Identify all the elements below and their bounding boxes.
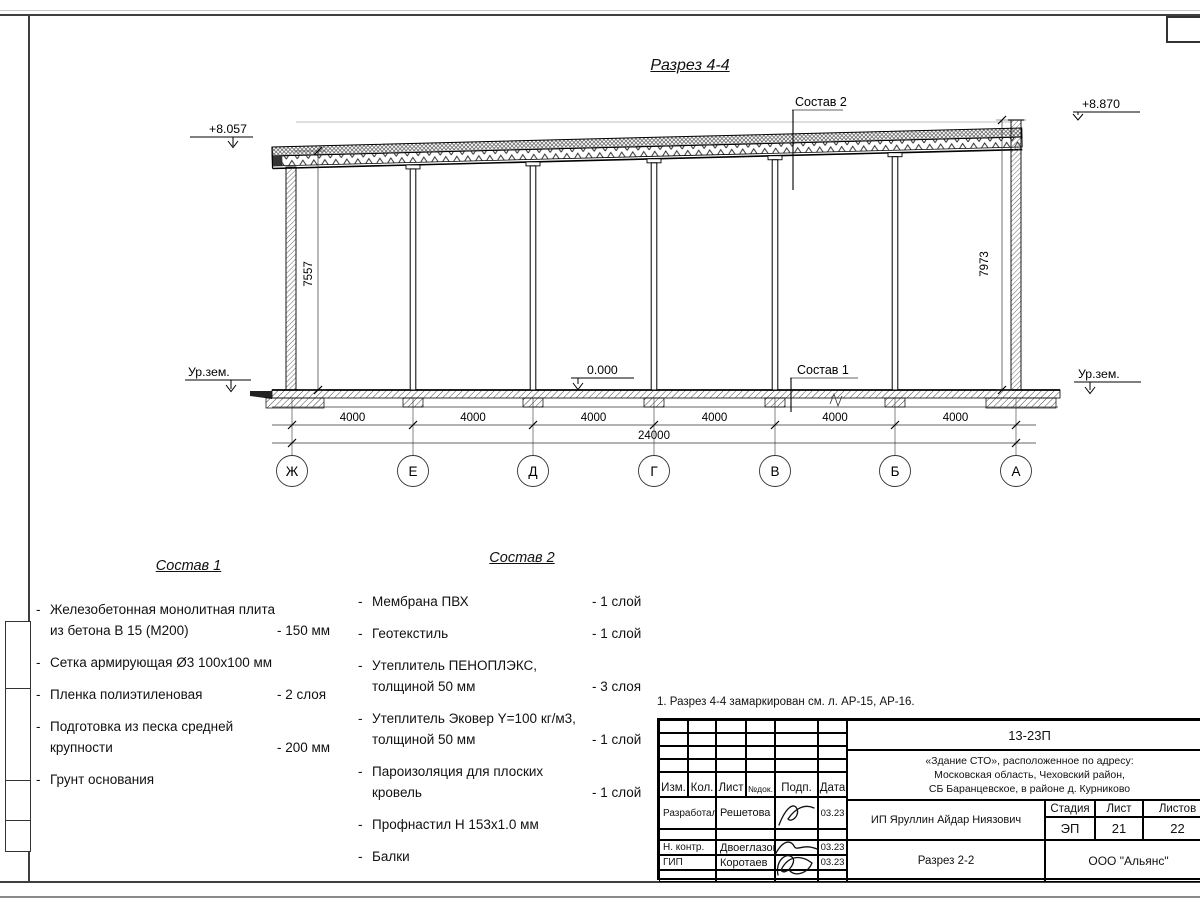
column-footing	[644, 398, 664, 407]
revision-header-cell: Подп.	[775, 772, 818, 797]
revision-cell	[659, 720, 688, 733]
composition2-title: Состав 2	[358, 548, 656, 569]
date-cell: 03.23	[818, 840, 847, 855]
client-name: ИП Яруллин Айдар Ниязович	[871, 814, 1021, 826]
column-footing	[765, 398, 785, 407]
composition-item-value: - 1 слой	[592, 729, 656, 750]
revision-cell	[716, 720, 746, 733]
stage-label: Стадия	[1050, 803, 1089, 815]
revision-header-cell: Изм.	[659, 772, 688, 797]
composition-item: -Пароизоляция для плоских кровель- 1 сло…	[358, 761, 656, 803]
sheets-value: 22	[1170, 821, 1184, 836]
revision-cell	[818, 759, 847, 772]
revision-cell	[746, 720, 775, 733]
revision-cell	[659, 733, 688, 746]
project-line: Московская область, Чеховский район,	[934, 768, 1125, 782]
column-footing	[885, 398, 905, 407]
left-footing	[266, 398, 324, 408]
composition-item-value: - 1 слой	[592, 782, 656, 803]
composition-item: -Утеплитель ПЕНОПЛЭКС,толщиной 50 мм- 3 …	[358, 655, 656, 697]
right-wall-parapet	[1011, 120, 1021, 390]
ground-level-right: Ур.зем.	[1074, 367, 1141, 394]
elevation-zero: 0.000	[571, 363, 634, 390]
company-cell: ООО "Альянс"	[1045, 840, 1200, 882]
revision-cell	[659, 759, 688, 772]
sheets-label-cell: Листов	[1143, 800, 1200, 817]
revision-cell	[746, 759, 775, 772]
revision-cell	[688, 733, 716, 746]
axis-label: Е	[408, 464, 417, 479]
composition-item-value: - 1 слой	[592, 623, 656, 644]
roof-edge-channel	[272, 156, 282, 166]
drawing-name: Разрез 2-2	[918, 855, 974, 867]
drawing-sheet: Разрез 4-4	[0, 0, 1200, 900]
column-footing	[523, 398, 543, 407]
doc-number-cell: 13-23П	[847, 720, 1200, 750]
column	[892, 157, 898, 390]
column-capital	[526, 162, 540, 166]
side-stamp-box	[5, 621, 31, 690]
axis-label: В	[770, 464, 779, 479]
composition1-title: Состав 1	[36, 556, 341, 577]
composition-item: -Подготовка из песка среднейкрупности- 2…	[36, 716, 341, 758]
column	[410, 169, 416, 390]
role-cell: ГИП	[659, 855, 716, 870]
section-drawing: 7557 7973 +8.057 +8.870 0.000	[0, 0, 1200, 520]
ground-level-label: Ур.зем.	[1078, 367, 1120, 381]
revision-cell	[775, 720, 818, 733]
project-line: СБ Баранцевское, в районе д. Курниково	[929, 782, 1130, 796]
composition1-block: Состав 1 -Железобетонная монолитная плит…	[36, 556, 341, 801]
elevation-label: +8.870	[1082, 97, 1120, 111]
note-text: 1. Разрез 4-4 замаркирован см. л. АР-15,…	[657, 696, 915, 708]
empty-cell	[716, 829, 775, 840]
revision-cell	[716, 733, 746, 746]
sheet-value: 21	[1112, 821, 1126, 836]
revision-cell	[688, 759, 716, 772]
composition-item: -Грунт основания	[36, 769, 341, 790]
composition-item: -Балки	[358, 846, 656, 867]
revision-cell	[818, 720, 847, 733]
stage-value-cell: ЭП	[1045, 817, 1095, 840]
composition-item: -Геотекстиль- 1 слой	[358, 623, 656, 644]
axis-label: Д	[528, 464, 537, 479]
dim-left-label: 7557	[303, 261, 315, 287]
role-cell: Разработал	[659, 797, 716, 829]
composition-item-value: - 150 мм	[277, 620, 341, 641]
column-capital	[768, 156, 782, 160]
composition-item-value: - 1 слой	[592, 591, 656, 612]
column-capital	[888, 153, 902, 157]
composition-item: -Железобетонная монолитная плитаиз бетон…	[36, 599, 341, 641]
roof-left-edge	[272, 147, 273, 168]
axis-label: Ж	[286, 464, 299, 479]
floor-slab	[272, 390, 1060, 398]
revision-header-cell: Кол.	[688, 772, 716, 797]
column	[530, 166, 536, 390]
elevation-label: +8.057	[209, 122, 247, 136]
bay-dim-label: 4000	[943, 412, 969, 424]
elevation-right-top: +8.870	[1073, 97, 1140, 120]
sheet-label: Лист	[1107, 803, 1132, 815]
axis-label: Б	[891, 464, 900, 479]
revision-cell	[775, 759, 818, 772]
revision-header-cell: №док.	[746, 772, 775, 797]
column-footing	[403, 398, 423, 407]
role-cell: Н. контр.	[659, 840, 716, 855]
signature	[772, 849, 820, 888]
name-cell: Двоеглазов	[716, 840, 775, 855]
composition-item: -Утеплитель Эковер Y=100 кг/м3,толщиной …	[358, 708, 656, 750]
empty-cell	[818, 829, 847, 840]
sheet-value-cell: 21	[1095, 817, 1143, 840]
left-wall	[286, 167, 296, 390]
date-cell: 03.23	[818, 797, 847, 829]
composition-item: -Сетка армирующая Ø3 100х100 мм	[36, 652, 341, 673]
composition-item-value: - 200 мм	[277, 737, 341, 758]
revision-cell	[716, 759, 746, 772]
bay-dim-label: 4000	[340, 412, 366, 424]
empty-cell	[818, 870, 847, 882]
side-stamp-box	[5, 780, 31, 822]
date-cell: 03.23	[818, 855, 847, 870]
project-cell: «Здание СТО», расположенное по адресу: М…	[847, 750, 1200, 800]
composition-item-value: - 2 слоя	[277, 684, 341, 705]
axis-label: А	[1011, 464, 1020, 479]
elevation-left-top: +8.057	[190, 122, 253, 148]
side-stamp-box	[5, 688, 31, 782]
stage-label-cell: Стадия	[1045, 800, 1095, 817]
empty-cell	[659, 870, 716, 882]
right-footing	[986, 398, 1056, 408]
drawing-name-cell: Разрез 2-2	[847, 840, 1045, 882]
column-capital	[406, 165, 420, 169]
revision-cell	[688, 720, 716, 733]
title-block: 13-23П «Здание СТО», расположенное по ад…	[657, 718, 1200, 880]
revision-cell	[775, 746, 818, 759]
revision-cell	[716, 746, 746, 759]
revision-cell	[818, 746, 847, 759]
column	[772, 160, 778, 390]
column	[651, 163, 657, 390]
revision-header-cell: Дата	[818, 772, 847, 797]
generated-axes-and-columns: ЖЕДГВБА400040004000400040004000	[277, 153, 1032, 487]
composition-item: -Мембрана ПВХ- 1 слой	[358, 591, 656, 612]
revision-cell	[659, 746, 688, 759]
composition2-block: Состав 2 -Мембрана ПВХ- 1 слой-Геотексти…	[358, 548, 656, 878]
revision-cell	[746, 746, 775, 759]
doc-number: 13-23П	[1008, 728, 1051, 743]
composition1-items: -Железобетонная монолитная плитаиз бетон…	[36, 599, 341, 790]
ground-level-label: Ур.зем.	[188, 365, 230, 379]
name-cell: Коротаев	[716, 855, 775, 870]
stage-value: ЭП	[1061, 821, 1080, 836]
sheets-label: Листов	[1159, 803, 1196, 815]
client-cell: ИП Яруллин Айдар Ниязович	[847, 800, 1045, 840]
composition-item: -Пленка полиэтиленовая- 2 слоя	[36, 684, 341, 705]
revision-header-cell: Лист	[716, 772, 746, 797]
revision-cell	[775, 733, 818, 746]
signature	[776, 799, 818, 836]
leader-floor-composition: Состав 1	[790, 363, 858, 412]
revision-cell	[746, 733, 775, 746]
bay-dim-label: 4000	[822, 412, 848, 424]
revision-cell	[818, 733, 847, 746]
column-capital	[647, 159, 661, 163]
side-stamp-box	[5, 820, 31, 852]
leader-label: Состав 1	[797, 363, 849, 377]
vertical-dimension-left: 7557	[294, 147, 326, 394]
axis-label: Г	[650, 464, 658, 479]
leader-label: Состав 2	[795, 95, 847, 109]
bay-dim-label: 4000	[581, 412, 607, 424]
project-line: «Здание СТО», расположенное по адресу:	[925, 754, 1133, 768]
ground-level-left: Ур.зем.	[185, 365, 251, 392]
elevation-label: 0.000	[587, 363, 618, 377]
sheets-value-cell: 22	[1143, 817, 1200, 840]
empty-cell	[716, 870, 775, 882]
composition2-items: -Мембрана ПВХ- 1 слой-Геотекстиль- 1 сло…	[358, 591, 656, 867]
sheet-label-cell: Лист	[1095, 800, 1143, 817]
company-name: ООО "Альянс"	[1088, 854, 1168, 868]
empty-cell	[659, 829, 716, 840]
dim-right-label: 7973	[979, 251, 991, 277]
paper-bottom-edge	[0, 896, 1200, 898]
name-cell: Решетова	[716, 797, 775, 829]
composition-item-value: - 3 слоя	[592, 676, 656, 697]
revision-cell	[688, 746, 716, 759]
composition-item: -Профнастил Н 153х1.0 мм	[358, 814, 656, 835]
bay-dim-label: 4000	[702, 412, 728, 424]
bay-dim-label: 4000	[460, 412, 486, 424]
